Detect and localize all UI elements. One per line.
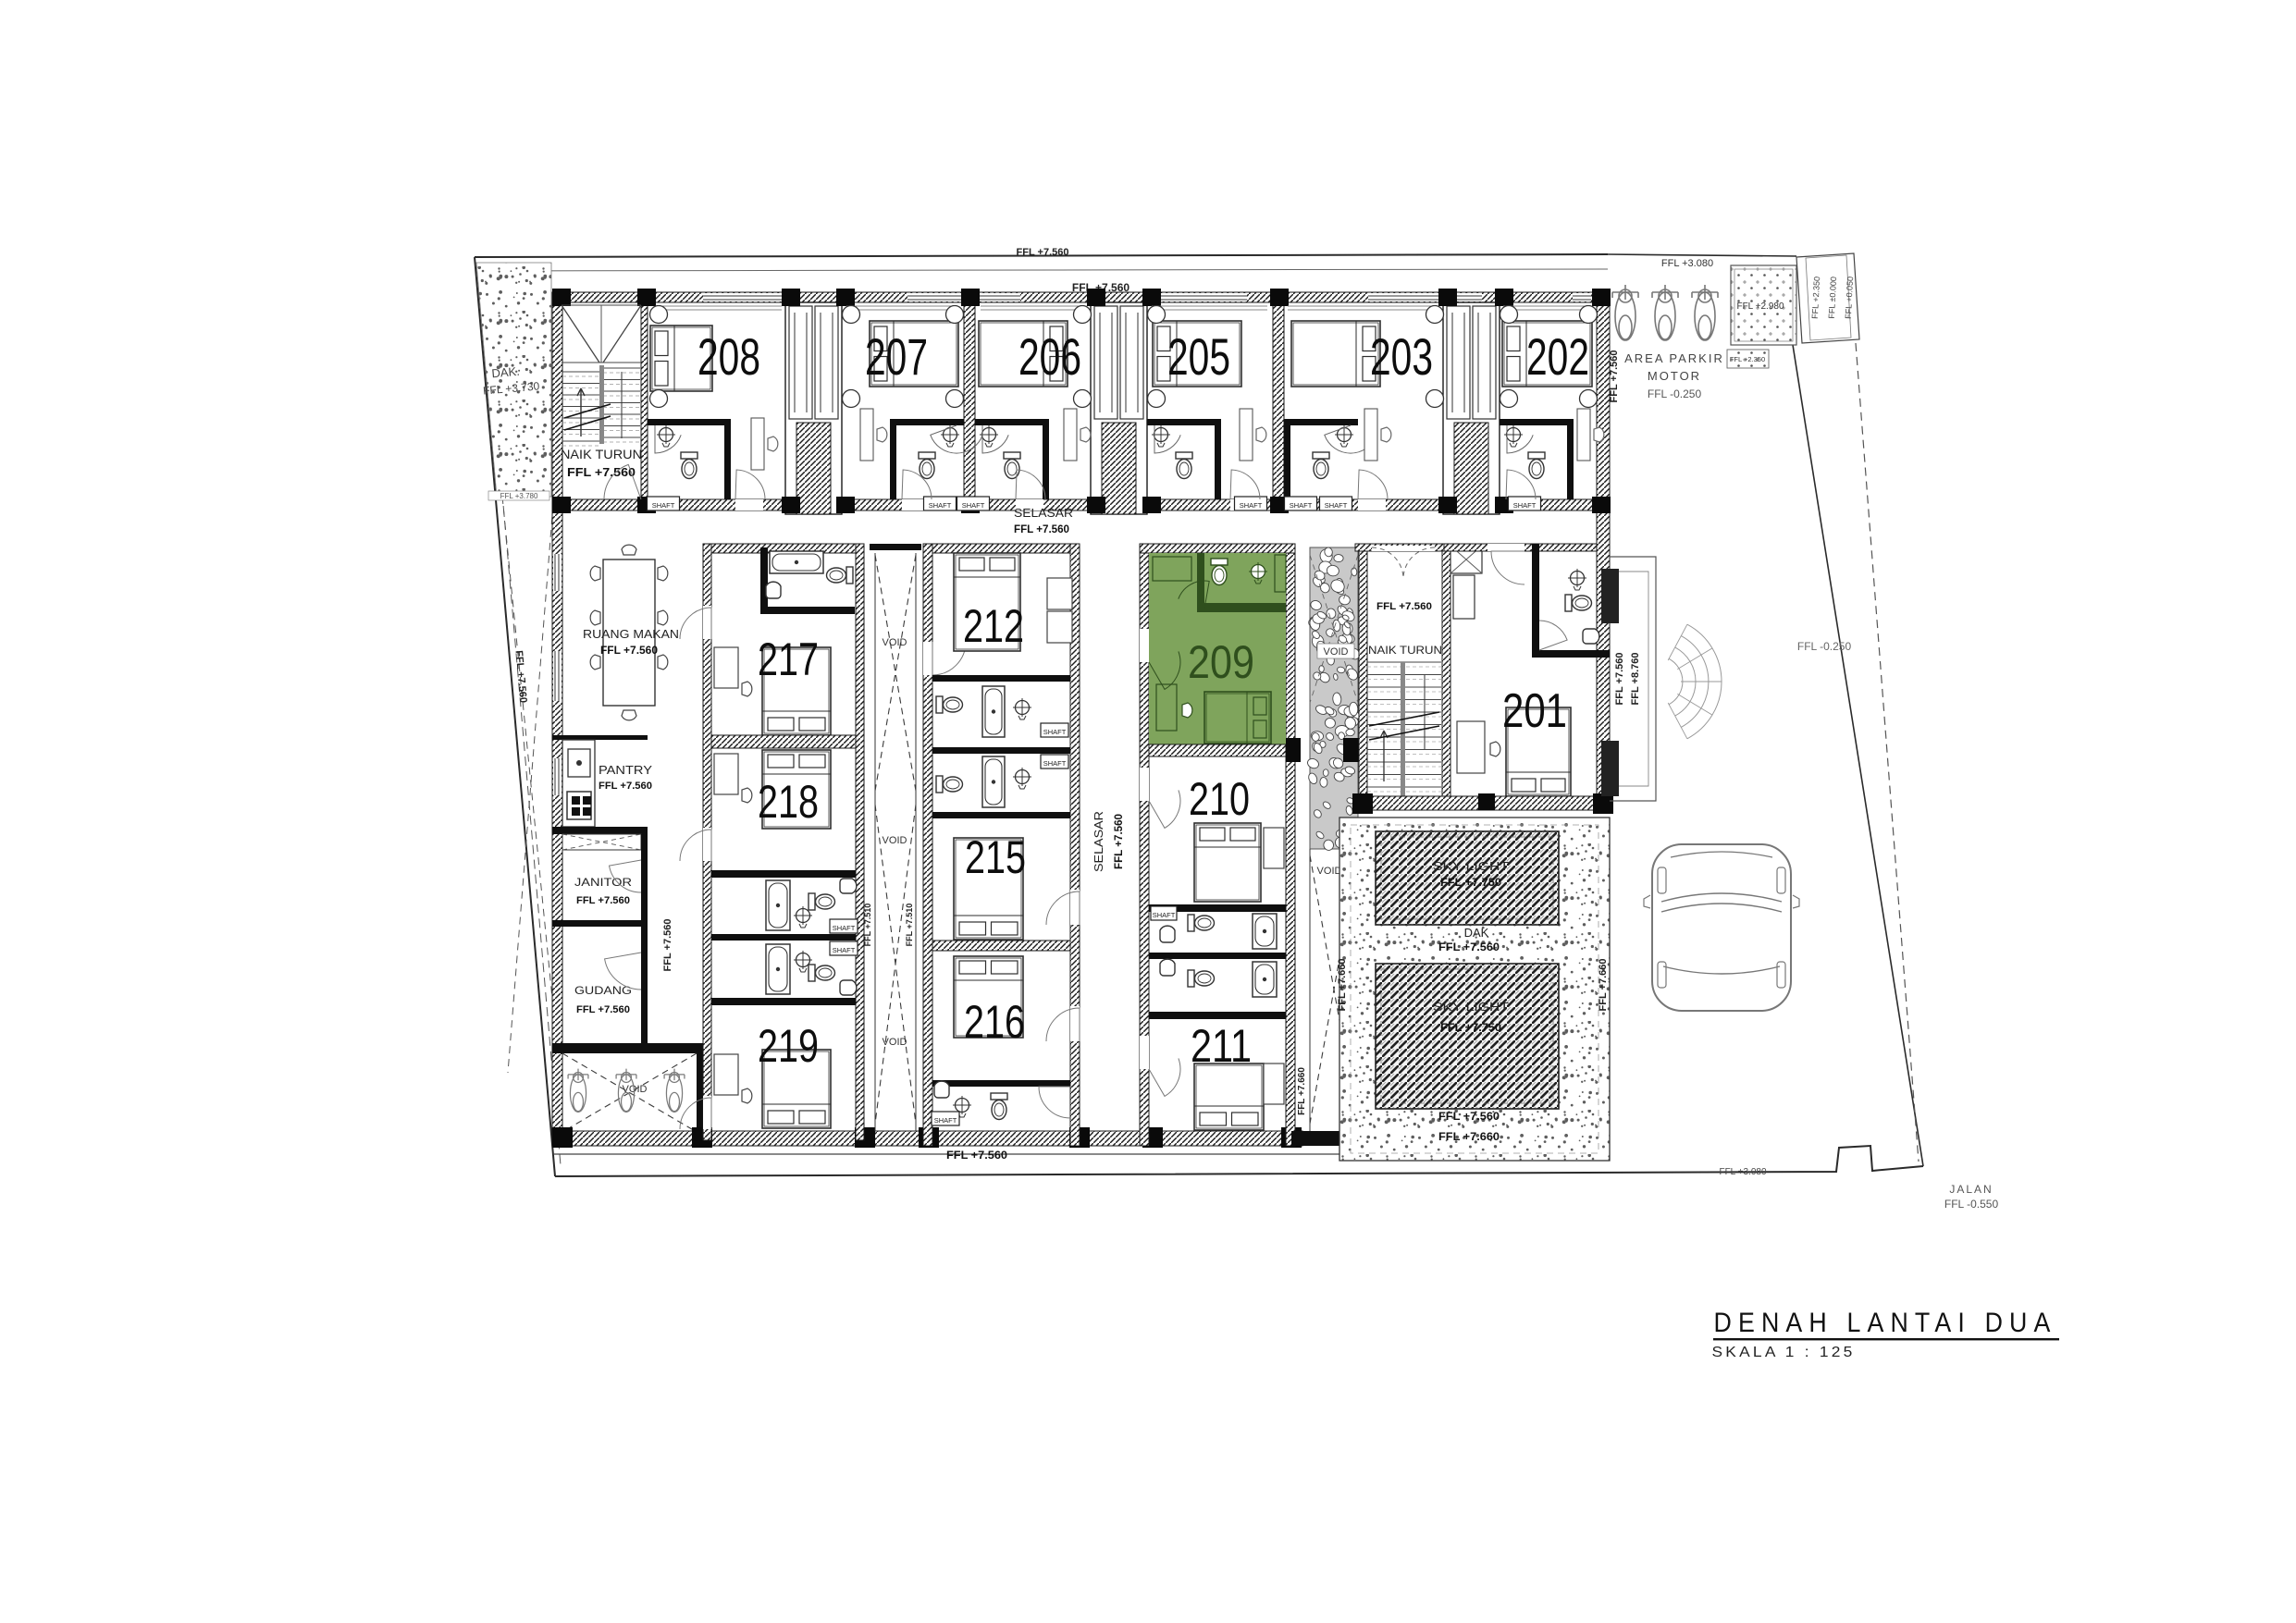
svg-text:FFL +7.560: FFL +7.560 xyxy=(576,895,630,906)
svg-text:FFL +7.750: FFL +7.750 xyxy=(1440,876,1501,889)
svg-text:SKALA 1 : 125: SKALA 1 : 125 xyxy=(1712,1345,1856,1360)
svg-text:SHAFT: SHAFT xyxy=(833,924,856,932)
svg-text:201: 201 xyxy=(1502,684,1567,738)
svg-text:VOID: VOID xyxy=(883,637,907,648)
svg-text:212: 212 xyxy=(963,600,1024,652)
svg-text:FFL +3.780: FFL +3.780 xyxy=(500,492,538,500)
svg-text:RUANG MAKAN: RUANG MAKAN xyxy=(583,627,679,641)
svg-text:SHAFT: SHAFT xyxy=(929,501,952,510)
svg-text:FFL +7.560: FFL +7.560 xyxy=(1438,1110,1500,1123)
svg-text:DAK: DAK xyxy=(1464,926,1489,940)
svg-text:NAIK TURUN: NAIK TURUN xyxy=(1368,644,1442,657)
svg-text:FFL +7.560: FFL +7.560 xyxy=(599,781,652,792)
svg-text:SHAFT: SHAFT xyxy=(652,501,675,510)
svg-text:NAIK TURUN: NAIK TURUN xyxy=(561,447,642,461)
svg-text:FFL +7.560: FFL +7.560 xyxy=(576,1004,630,1015)
svg-text:207: 207 xyxy=(865,327,928,386)
svg-text:FFL +8.760: FFL +8.760 xyxy=(1630,653,1641,706)
svg-text:MOTOR: MOTOR xyxy=(1648,369,1701,383)
svg-text:PANTRY: PANTRY xyxy=(599,763,652,777)
svg-text:FFL +7.510: FFL +7.510 xyxy=(863,904,872,947)
svg-text:FFL +7.560: FFL +7.560 xyxy=(1112,814,1125,869)
svg-text:SHAFT: SHAFT xyxy=(833,946,856,954)
svg-text:202: 202 xyxy=(1526,327,1589,386)
svg-text:FFL +3.080: FFL +3.080 xyxy=(1661,258,1713,269)
svg-text:SKY LIGHT: SKY LIGHT xyxy=(1433,859,1509,873)
svg-text:203: 203 xyxy=(1370,327,1433,386)
svg-text:SHAFT: SHAFT xyxy=(1325,501,1348,510)
svg-text:FFL +7.560: FFL +7.560 xyxy=(1376,601,1432,612)
svg-text:219: 219 xyxy=(758,1020,819,1072)
svg-text:FFL +7.560: FFL +7.560 xyxy=(1614,653,1625,706)
svg-text:DAK.: DAK. xyxy=(491,364,521,381)
svg-text:FFL +7.660: FFL +7.660 xyxy=(1297,1067,1307,1115)
svg-text:216: 216 xyxy=(964,996,1025,1048)
svg-text:VOID: VOID xyxy=(883,1037,907,1048)
svg-text:SHAFT: SHAFT xyxy=(1513,501,1537,510)
svg-text:FFL +7.750: FFL +7.750 xyxy=(1440,1021,1501,1034)
svg-text:SHAFT: SHAFT xyxy=(1043,759,1067,768)
svg-text:FFL +2.350: FFL +2.350 xyxy=(1730,355,1765,363)
svg-text:FFL -0.250: FFL -0.250 xyxy=(1648,387,1702,400)
svg-text:217: 217 xyxy=(758,633,819,685)
svg-text:VOID: VOID xyxy=(883,835,907,846)
svg-text:VOID: VOID xyxy=(1324,646,1349,658)
svg-text:FFL +7.560: FFL +7.560 xyxy=(600,644,658,657)
svg-text:DENAH LANTAI DUA: DENAH LANTAI DUA xyxy=(1714,1308,2057,1338)
svg-text:206: 206 xyxy=(1018,327,1081,386)
svg-text:FFL +7.660: FFL +7.660 xyxy=(1598,959,1609,1012)
svg-text:FFL +7.560: FFL +7.560 xyxy=(1609,350,1620,403)
svg-text:SHAFT: SHAFT xyxy=(934,1116,957,1125)
svg-text:FFL +7.560: FFL +7.560 xyxy=(1014,523,1069,535)
svg-text:SELASAR: SELASAR xyxy=(1014,506,1073,520)
svg-text:SHAFT: SHAFT xyxy=(1153,911,1176,919)
svg-text:FFL +3.080: FFL +3.080 xyxy=(1719,1167,1766,1177)
svg-text:VOID: VOID xyxy=(1317,866,1342,877)
svg-text:GUDANG: GUDANG xyxy=(574,984,632,997)
svg-text:FFL +7.560: FFL +7.560 xyxy=(1438,941,1500,953)
svg-text:FFL +7.660: FFL +7.660 xyxy=(1337,959,1348,1012)
svg-text:208: 208 xyxy=(697,327,760,386)
svg-text:FFL +2.980: FFL +2.980 xyxy=(1736,301,1784,312)
svg-text:SHAFT: SHAFT xyxy=(1290,501,1313,510)
svg-text:210: 210 xyxy=(1189,773,1250,825)
svg-text:SKY LIGHT: SKY LIGHT xyxy=(1433,1000,1509,1014)
svg-text:FFL +7.560: FFL +7.560 xyxy=(946,1149,1007,1162)
svg-text:FFL +7.560: FFL +7.560 xyxy=(662,919,673,972)
svg-text:SELASAR: SELASAR xyxy=(1092,811,1105,872)
svg-text:205: 205 xyxy=(1167,327,1230,386)
svg-text:SHAFT: SHAFT xyxy=(962,501,985,510)
svg-text:FFL +7.510: FFL +7.510 xyxy=(905,904,914,947)
svg-text:218: 218 xyxy=(758,776,819,828)
svg-text:211: 211 xyxy=(1191,1020,1252,1072)
svg-text:SHAFT: SHAFT xyxy=(1043,728,1067,736)
svg-text:FFL -0.250: FFL -0.250 xyxy=(1797,640,1852,653)
svg-text:SHAFT: SHAFT xyxy=(1240,501,1263,510)
svg-text:215: 215 xyxy=(965,831,1026,883)
svg-text:FFL +7.560: FFL +7.560 xyxy=(1017,247,1069,258)
svg-text:FFL -0.550: FFL -0.550 xyxy=(1944,1198,1999,1211)
svg-text:FFL +7.560: FFL +7.560 xyxy=(567,465,636,479)
svg-text:JALAN: JALAN xyxy=(1949,1183,1993,1196)
svg-text:AREA PARKIR: AREA PARKIR xyxy=(1624,351,1724,365)
svg-text:FFL +7.660: FFL +7.660 xyxy=(1438,1130,1500,1143)
svg-text:209: 209 xyxy=(1188,636,1254,688)
